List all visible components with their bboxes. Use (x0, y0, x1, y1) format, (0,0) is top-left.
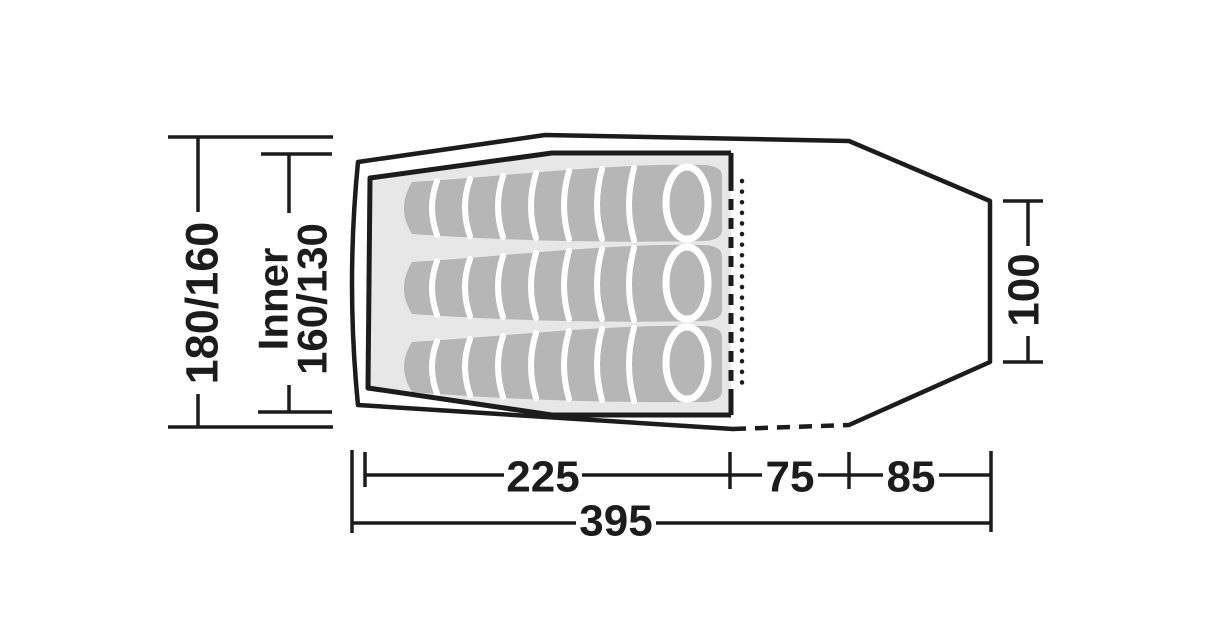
dim-label-porch-length: 75 (766, 453, 815, 502)
tent-dimension-diagram: 180/160 Inner 160/130 100 (0, 0, 1230, 641)
dimension-length-segments: 225 75 85 (365, 452, 991, 502)
tent-floorplan-svg: 180/160 Inner 160/130 100 (0, 0, 1230, 641)
dimension-rear-width: 100 (1000, 201, 1049, 362)
tent-outline-dashed-porch-edge (733, 425, 849, 429)
dim-label-outer-width: 180/160 (177, 222, 228, 385)
dim-label-rear-length: 85 (887, 453, 936, 502)
dim-label-inner-width: 160/130 (289, 223, 336, 375)
dim-label-total-length: 395 (579, 497, 652, 546)
sleeping-bags (404, 165, 722, 402)
dimension-inner-width: Inner 160/130 (247, 154, 337, 412)
dim-label-inner-length: 225 (506, 453, 579, 502)
dim-label-rear-width: 100 (1000, 253, 1049, 326)
